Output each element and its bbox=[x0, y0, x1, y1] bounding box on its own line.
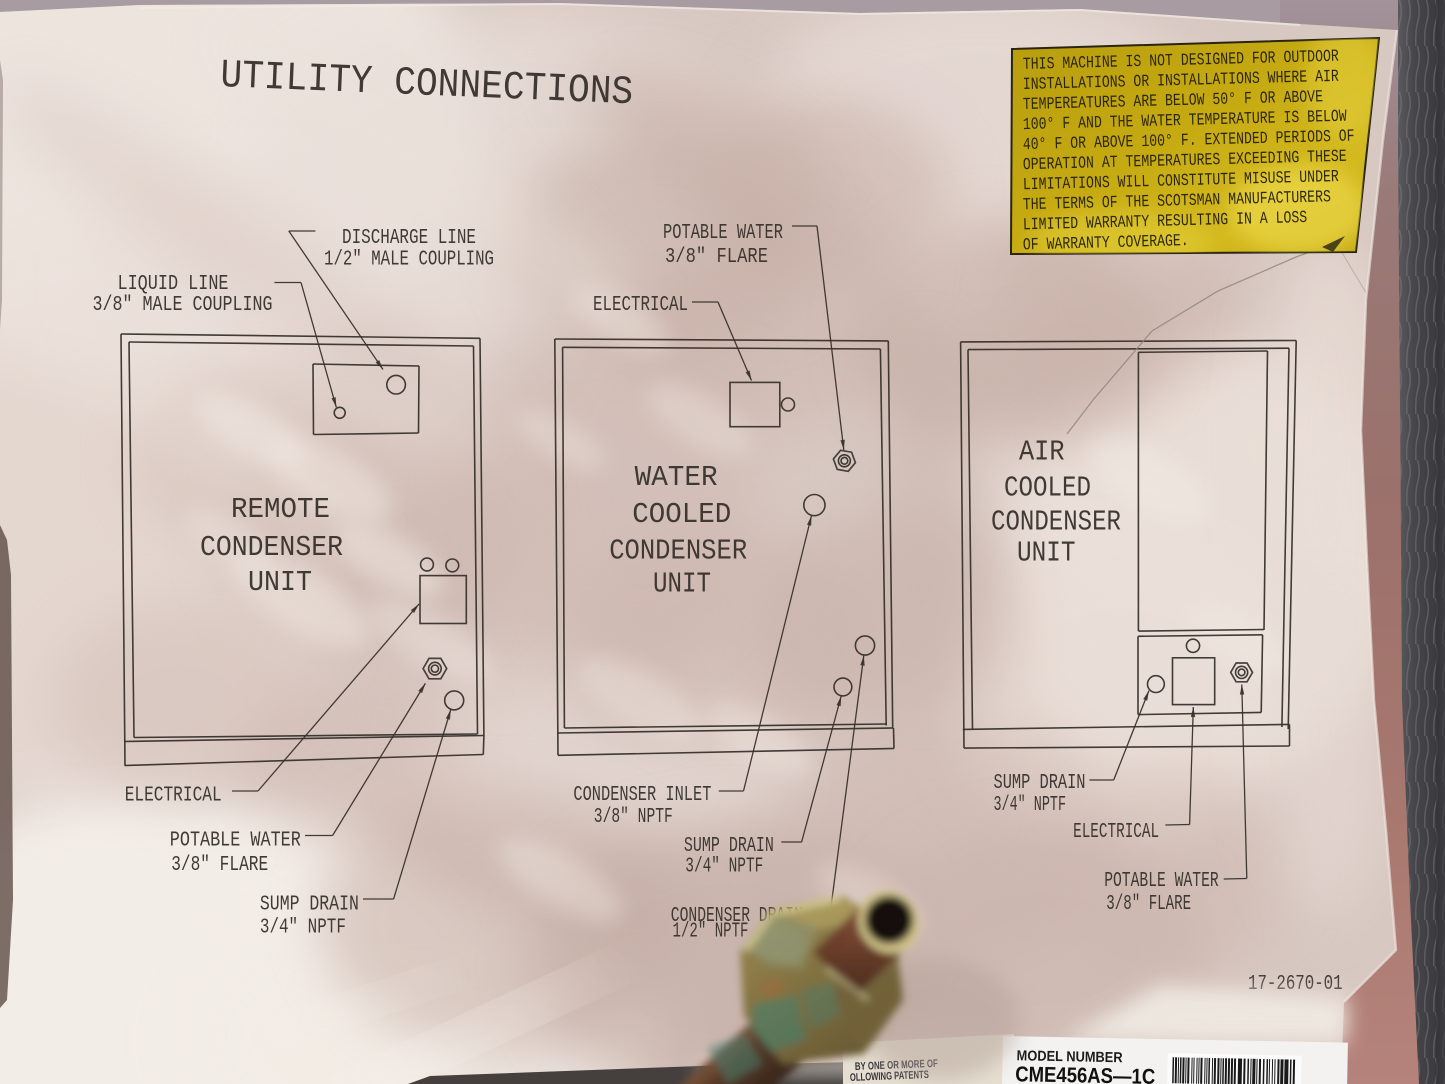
svg-text:3/8" FLARE: 3/8" FLARE bbox=[171, 854, 268, 877]
svg-text:3/4" NPTF: 3/4" NPTF bbox=[260, 917, 346, 940]
svg-text:DISCHARGE LINE: DISCHARGE LINE bbox=[342, 227, 476, 250]
svg-text:COOLED: COOLED bbox=[1004, 472, 1091, 505]
svg-text:ELECTRICAL: ELECTRICAL bbox=[125, 785, 222, 808]
svg-text:UNIT: UNIT bbox=[248, 566, 312, 599]
svg-text:CONDENSER INLET: CONDENSER INLET bbox=[573, 784, 711, 807]
svg-text:WATER: WATER bbox=[635, 461, 718, 494]
svg-text:UNIT: UNIT bbox=[653, 568, 711, 601]
svg-text:COOLED: COOLED bbox=[632, 498, 731, 531]
svg-text:POTABLE WATER: POTABLE WATER bbox=[1104, 870, 1219, 893]
svg-text:REMOTE: REMOTE bbox=[231, 493, 330, 526]
svg-text:SUMP DRAIN: SUMP DRAIN bbox=[260, 894, 359, 917]
svg-text:3/4" NPTF: 3/4" NPTF bbox=[994, 794, 1067, 817]
svg-text:3/4" NPTF: 3/4" NPTF bbox=[685, 856, 763, 879]
svg-text:SUMP DRAIN: SUMP DRAIN bbox=[994, 772, 1086, 795]
svg-text:AIR: AIR bbox=[1019, 436, 1065, 469]
svg-text:CME456AS—1C: CME456AS—1C bbox=[1015, 1062, 1155, 1084]
svg-text:UNIT: UNIT bbox=[1017, 537, 1076, 570]
svg-text:CONDENSER: CONDENSER bbox=[609, 535, 747, 568]
svg-text:ELECTRICAL: ELECTRICAL bbox=[1073, 821, 1159, 844]
svg-text:1/2" MALE COUPLING: 1/2" MALE COUPLING bbox=[324, 249, 494, 272]
svg-text:3/8" FLARE: 3/8" FLARE bbox=[665, 246, 768, 269]
svg-text:ELECTRICAL: ELECTRICAL bbox=[593, 294, 688, 317]
svg-text:3/8" MALE COUPLING: 3/8" MALE COUPLING bbox=[93, 294, 273, 317]
svg-text:LIQUID LINE: LIQUID LINE bbox=[118, 273, 229, 296]
svg-text:3/8" NPTF: 3/8" NPTF bbox=[594, 806, 673, 829]
svg-text:1/2" NPTF: 1/2" NPTF bbox=[673, 921, 749, 944]
svg-text:3/8" FLARE: 3/8" FLARE bbox=[1106, 893, 1191, 916]
svg-text:CONDENSER: CONDENSER bbox=[991, 506, 1121, 539]
svg-text:POTABLE WATER: POTABLE WATER bbox=[663, 222, 783, 245]
svg-text:CONDENSER: CONDENSER bbox=[200, 531, 343, 564]
svg-text:POTABLE WATER: POTABLE WATER bbox=[170, 830, 301, 853]
